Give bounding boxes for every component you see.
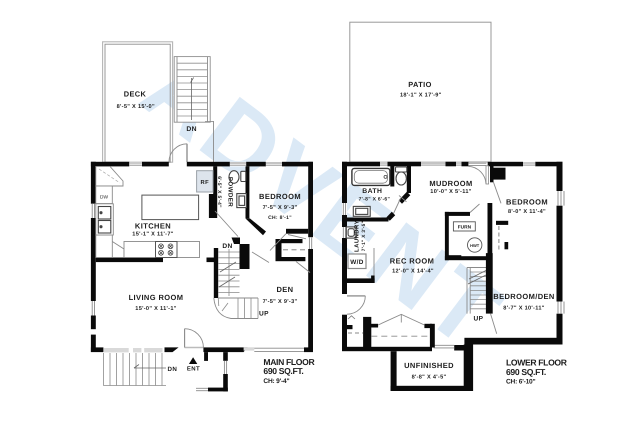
svg-text:8'-8" X 4'-5": 8'-8" X 4'-5" — [412, 375, 447, 381]
svg-text:690 SQ.FT.: 690 SQ.FT. — [506, 367, 546, 377]
svg-text:CH: 6'-10": CH: 6'-10" — [506, 379, 536, 386]
svg-text:7'-5" X 9'-3": 7'-5" X 9'-3" — [263, 299, 298, 305]
svg-text:FURN: FURN — [458, 225, 472, 231]
svg-text:DECK: DECK — [124, 90, 147, 99]
svg-text:15'-0" X 11'-1": 15'-0" X 11'-1" — [135, 306, 176, 312]
svg-text:UP: UP — [474, 316, 484, 323]
svg-text:BATH: BATH — [362, 188, 382, 195]
svg-text:ENT: ENT — [187, 366, 200, 373]
svg-text:PATIO: PATIO — [408, 80, 432, 89]
svg-text:HWT: HWT — [470, 243, 480, 248]
svg-text:DN: DN — [186, 126, 197, 133]
svg-text:MUDROOM: MUDROOM — [429, 179, 472, 188]
svg-text:UP: UP — [259, 311, 269, 318]
svg-text:8'-7" X 10'-11": 8'-7" X 10'-11" — [503, 306, 544, 312]
svg-text:POWDER: POWDER — [227, 177, 234, 207]
svg-text:BEDROOM/DEN: BEDROOM/DEN — [493, 292, 555, 301]
svg-text:7'-8" X 6'-6": 7'-8" X 6'-6" — [359, 197, 391, 203]
svg-text:DN: DN — [168, 366, 178, 373]
svg-text:W/D: W/D — [350, 259, 364, 266]
svg-text:8'-5" X 15'-0": 8'-5" X 15'-0" — [117, 104, 155, 110]
svg-text:15'-1" X 11'-7": 15'-1" X 11'-7" — [132, 232, 173, 238]
svg-text:KITCHEN: KITCHEN — [135, 222, 171, 231]
svg-text:BEDROOM: BEDROOM — [506, 197, 548, 206]
svg-text:RF: RF — [201, 180, 210, 186]
svg-text:DN: DN — [222, 243, 232, 250]
svg-text:7'-5" X 9'-3": 7'-5" X 9'-3" — [263, 205, 298, 211]
svg-text:CH: 8'-1": CH: 8'-1" — [268, 215, 292, 221]
svg-text:DW: DW — [100, 195, 108, 201]
svg-text:REC ROOM: REC ROOM — [390, 256, 434, 265]
svg-text:8'-0" X 11'-4": 8'-0" X 11'-4" — [508, 209, 546, 215]
svg-text:UNFINISHED: UNFINISHED — [404, 361, 454, 370]
svg-text:12'-0" X 14'-4": 12'-0" X 14'-4" — [392, 268, 434, 274]
svg-text:7'-1" X 3'-5": 7'-1" X 3'-5" — [361, 221, 367, 251]
svg-text:18'-1" X 17'-9": 18'-1" X 17'-9" — [400, 93, 442, 99]
svg-text:LIVING ROOM: LIVING ROOM — [129, 293, 184, 302]
svg-text:BEDROOM: BEDROOM — [259, 192, 301, 201]
svg-text:690 SQ.FT.: 690 SQ.FT. — [263, 366, 303, 376]
svg-text:10'-0" X 5'-11": 10'-0" X 5'-11" — [430, 189, 471, 195]
svg-text:LAUNDRY: LAUNDRY — [354, 220, 361, 252]
svg-text:6'-5" X 5'-4": 6'-5" X 5'-4" — [216, 176, 222, 208]
svg-text:CH: 9'-4": CH: 9'-4" — [263, 378, 289, 385]
svg-text:DEN: DEN — [276, 285, 293, 294]
